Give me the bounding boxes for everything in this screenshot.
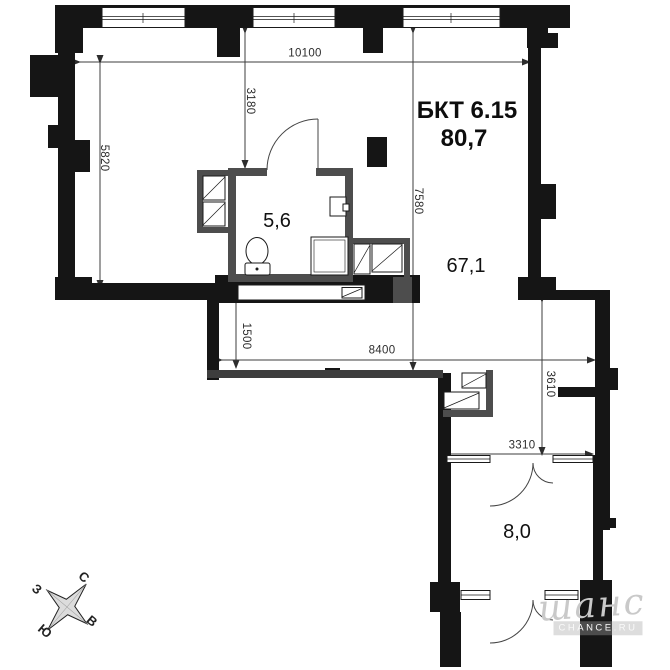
- watermark-badge: CHANCE.RU: [554, 621, 643, 635]
- dim-window-to-bath: 3180: [243, 88, 255, 115]
- doors: [267, 119, 553, 643]
- dim-top-width: 10100: [288, 48, 321, 60]
- toilet: [246, 238, 268, 265]
- windows: [102, 8, 593, 600]
- window-partition-upper-left: [447, 456, 490, 463]
- window-top-3: [403, 8, 500, 28]
- dim-right-height: 7580: [411, 188, 423, 215]
- living-area: 67,1: [447, 256, 486, 276]
- dim-lower-room-width: 3310: [509, 440, 536, 452]
- total-area: 80,7: [441, 127, 488, 151]
- exterior-walls: [30, 5, 618, 667]
- dim-left-height: 5820: [97, 145, 109, 172]
- corridor-wall: [207, 370, 443, 378]
- window-partition-lower-left: [461, 591, 490, 600]
- bathroom-area: 5,6: [263, 211, 291, 231]
- double-door-upper: [490, 463, 553, 506]
- floor-plan: 10100 5820 3180 7580 1500 8400 3610 3310…: [0, 0, 670, 670]
- dim-corridor-width: 8400: [369, 345, 396, 357]
- bathroom-wall-top-left: [228, 168, 267, 176]
- dim-shaft-height: 3610: [543, 371, 555, 398]
- floor-plan-drawing: [0, 0, 670, 670]
- column: [367, 137, 387, 167]
- window-top-2: [253, 8, 335, 28]
- bathroom-wall-left: [228, 168, 236, 282]
- bathroom-door: [267, 119, 318, 170]
- window-top-1: [102, 8, 185, 28]
- unit-label: БКТ 6.15: [417, 99, 518, 123]
- window-partition-upper-right: [553, 456, 593, 463]
- dim-closet-depth: 1500: [239, 323, 251, 350]
- lower-room-area: 8,0: [503, 522, 531, 542]
